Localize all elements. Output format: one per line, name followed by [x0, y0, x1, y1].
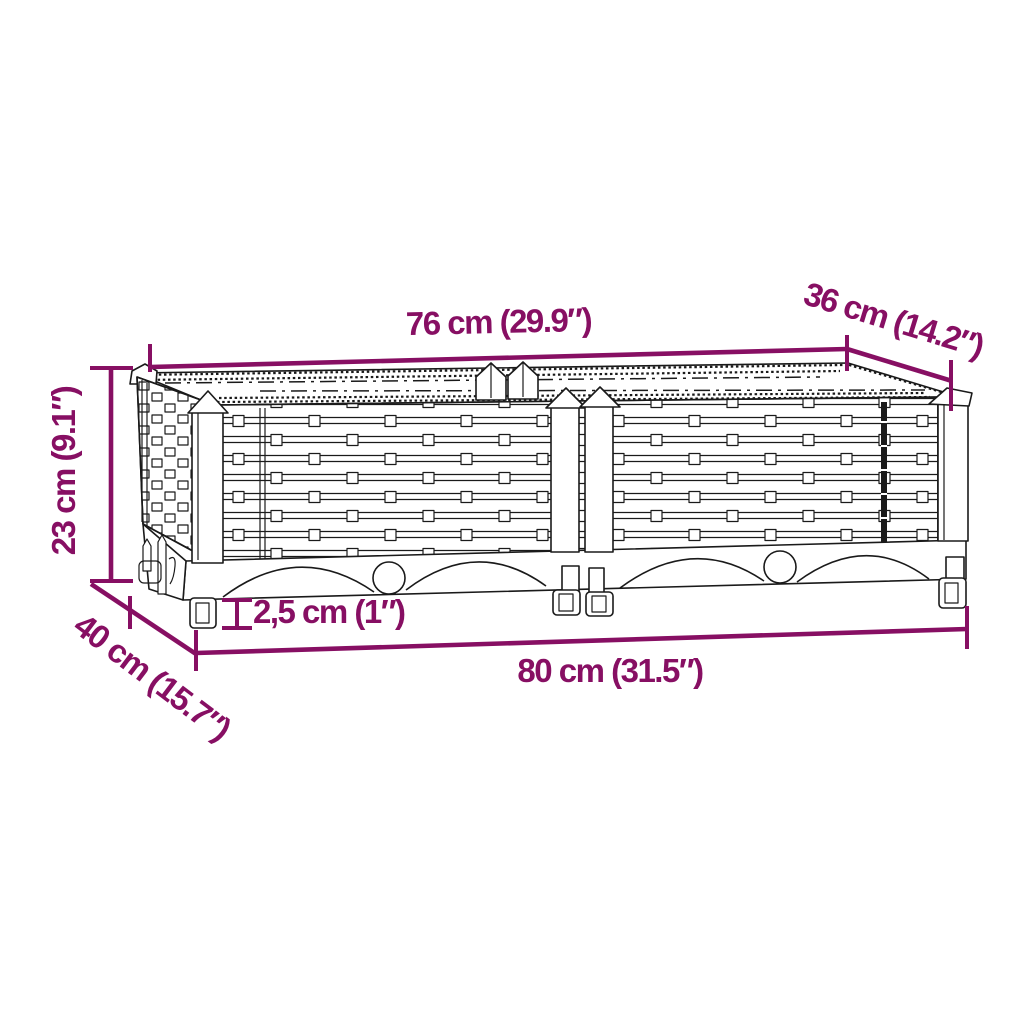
base-ball-left	[373, 562, 405, 594]
planter-front-left-post	[188, 391, 228, 563]
dimension-line-height	[90, 368, 133, 581]
dimension-line-foot-height	[222, 600, 252, 628]
dimension-label-base-width: 80 cm (31.5″)	[450, 651, 770, 691]
product-diagram-canvas: 76 cm (29.9″) 36 cm (14.2″) 23 cm (9.1″)…	[0, 0, 1024, 1024]
dimension-label-height: 23 cm (9.1″)	[44, 356, 84, 586]
planter-line-art	[0, 0, 1024, 1024]
module-seam	[881, 402, 887, 545]
base-ball-right	[764, 551, 796, 583]
dimension-label-foot-height: 2,5 cm (1″)	[253, 592, 473, 632]
